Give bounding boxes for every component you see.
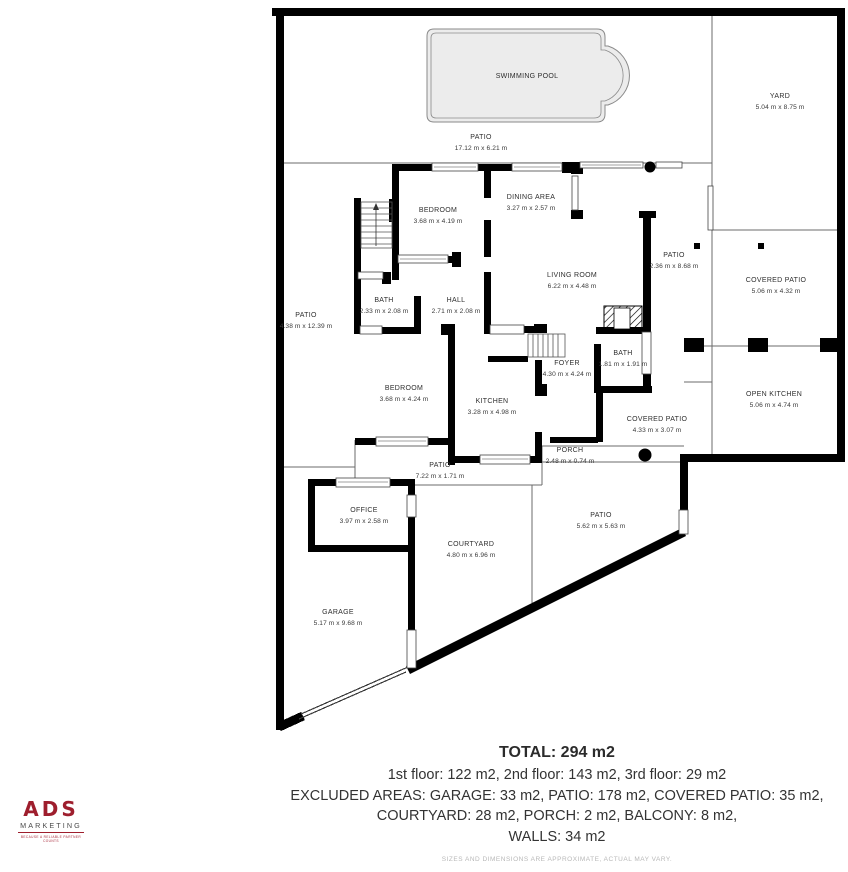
disclaimer-text: SIZES AND DIMENSIONS ARE APPROXIMATE, AC…	[266, 856, 848, 863]
room-label-swimming-pool: SWIMMING POOL	[496, 72, 559, 83]
room-label-patio-top: PATIO17.12 m x 6.21 m	[455, 133, 508, 153]
walls-line: WALLS: 34 m2	[266, 827, 848, 848]
pillars	[684, 243, 837, 352]
room-label-garage: GARAGE5.17 m x 9.68 m	[314, 608, 363, 628]
room-label-courtyard: COURTYARD4.80 m x 6.96 m	[447, 540, 496, 560]
room-label-dining-area: DINING AREA3.27 m x 2.57 m	[507, 193, 556, 213]
room-label-office: OFFICE3.97 m x 2.58 m	[340, 506, 389, 526]
staircase-foyer	[528, 334, 565, 357]
floors-line: 1st floor: 122 m2, 2nd floor: 143 m2, 3r…	[266, 765, 848, 786]
floor-plan-drawing	[0, 0, 848, 760]
room-label-patio-right: PATIO2.36 m x 8.68 m	[650, 251, 699, 271]
room-label-porch: PORCH2.48 m x 0.74 m	[546, 446, 595, 466]
agency-logo: ADS MARKETING BECAUSE A RELIABLE PARTNER…	[18, 799, 84, 843]
logo-brand-text: ADS	[18, 799, 84, 819]
room-label-covered-patio-right: COVERED PATIO5.06 m x 4.32 m	[746, 276, 806, 296]
room-label-patio-left: PATIO4.38 m x 12.39 m	[280, 311, 333, 331]
room-label-patio-bottom: PATIO5.62 m x 5.63 m	[577, 511, 626, 531]
staircase-upper	[361, 202, 392, 248]
excluded-line-2: COURTYARD: 28 m2, PORCH: 2 m2, BALCONY: …	[266, 806, 848, 827]
room-label-yard: YARD5.04 m x 8.75 m	[756, 92, 805, 112]
fireplace	[604, 306, 642, 331]
total-area: TOTAL: 294 m2	[266, 744, 848, 762]
room-label-foyer: FOYER4.30 m x 4.24 m	[543, 359, 592, 379]
door-openings	[483, 257, 492, 272]
area-summary: TOTAL: 294 m2 1st floor: 122 m2, 2nd flo…	[266, 744, 848, 863]
logo-tagline-text: BECAUSE A RELIABLE PARTNER COUNTS	[18, 835, 84, 843]
room-label-living-room: LIVING ROOM6.22 m x 4.48 m	[547, 271, 597, 291]
room-label-open-kitchen: OPEN KITCHEN5.06 m x 4.74 m	[746, 390, 802, 410]
room-label-covered-patio-center: COVERED PATIO4.33 m x 3.07 m	[627, 415, 687, 435]
room-label-bath-2: BATH1.81 m x 1.91 m	[599, 349, 648, 369]
room-label-bedroom-1: BEDROOM3.68 m x 4.19 m	[414, 206, 463, 226]
room-label-bedroom-2: BEDROOM3.68 m x 4.24 m	[380, 384, 429, 404]
room-label-patio-center: PATIO7.22 m x 1.71 m	[416, 461, 465, 481]
room-label-bath-1: BATH2.33 m x 2.08 m	[360, 296, 409, 316]
room-label-kitchen: KITCHEN3.28 m x 4.98 m	[468, 397, 517, 417]
room-label-hall: HALL2.71 m x 2.08 m	[432, 296, 481, 316]
logo-subtitle-text: MARKETING	[18, 821, 84, 833]
floor-plan-page: SWIMMING POOLYARD5.04 m x 8.75 mPATIO17.…	[0, 0, 848, 872]
excluded-line-1: EXCLUDED AREAS: GARAGE: 33 m2, PATIO: 17…	[266, 786, 848, 807]
